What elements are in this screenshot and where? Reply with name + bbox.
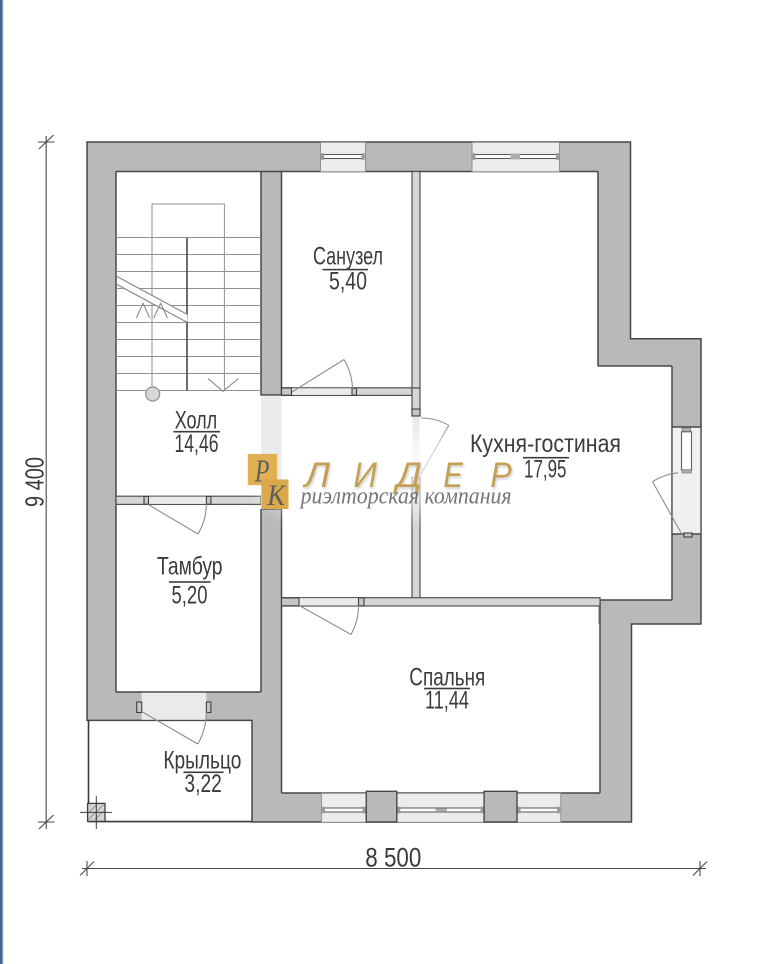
svg-text:Тамбур: Тамбур <box>157 553 223 581</box>
svg-text:К: К <box>267 479 287 512</box>
svg-text:5,40: 5,40 <box>329 268 367 296</box>
svg-text:11,44: 11,44 <box>425 687 469 715</box>
svg-text:Санузел: Санузел <box>313 243 383 271</box>
svg-text:5,20: 5,20 <box>172 582 208 610</box>
svg-text:Кухня-гостиная: Кухня-гостиная <box>470 430 621 458</box>
svg-text:3,22: 3,22 <box>184 770 222 798</box>
svg-text:14,46: 14,46 <box>175 430 219 458</box>
svg-text:риэлторская компания: риэлторская компания <box>299 483 512 510</box>
svg-text:17,95: 17,95 <box>524 456 567 484</box>
svg-text:8 500: 8 500 <box>365 843 421 873</box>
svg-text:9 400: 9 400 <box>20 457 50 507</box>
